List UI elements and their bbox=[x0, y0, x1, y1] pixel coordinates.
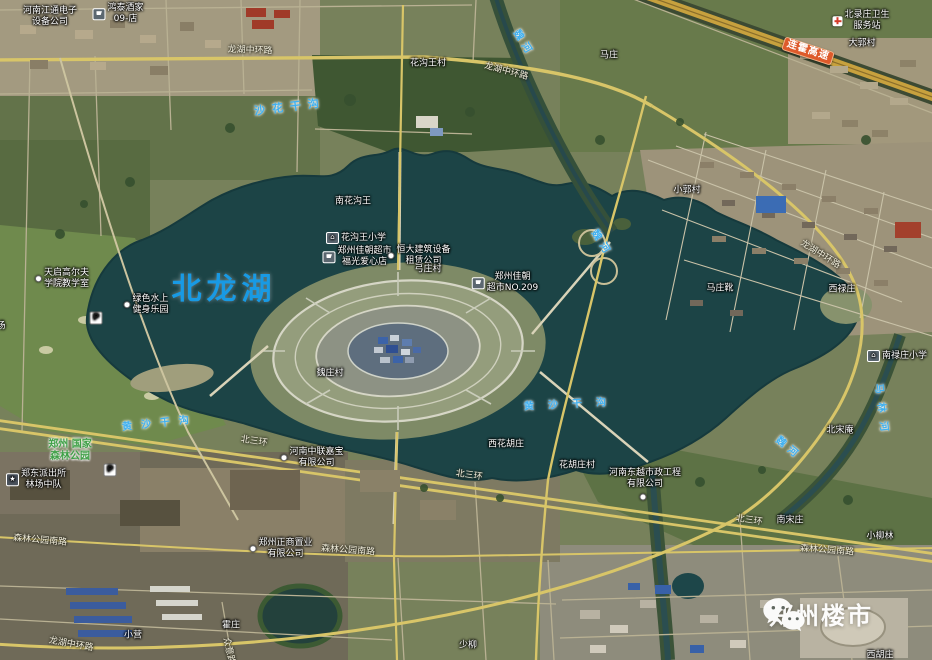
dot-icon bbox=[280, 455, 287, 462]
map-label[interactable]: 北宋庵 bbox=[826, 426, 853, 437]
poi-label[interactable]: 北录庄卫生服务站 bbox=[832, 10, 889, 32]
river-label: 魏河 bbox=[773, 435, 804, 463]
map-label[interactable]: 魏庄村 bbox=[316, 369, 343, 380]
map-label[interactable]: 花胡庄村 bbox=[559, 461, 595, 472]
parking-icon[interactable] bbox=[90, 312, 103, 325]
park-label: 郑州 国家森林公园 bbox=[48, 439, 91, 463]
dot-icon bbox=[249, 546, 256, 553]
road-label: 森林公园南路 bbox=[13, 533, 68, 548]
road-label: 龙湖中环路 bbox=[227, 45, 272, 57]
map-label[interactable]: 花沟王村 bbox=[410, 59, 446, 70]
road-label: 森林公园南路 bbox=[321, 544, 376, 559]
map-label[interactable]: 河南江通电子设备公司 bbox=[23, 6, 77, 28]
map-label[interactable]: 霍庄 bbox=[222, 621, 240, 632]
poi-label[interactable]: 郑东派出所林场中队 bbox=[6, 469, 66, 491]
poi-marker[interactable] bbox=[640, 494, 647, 501]
watermark: 郑州楼市 bbox=[762, 596, 873, 631]
dot-icon bbox=[640, 494, 647, 501]
poi-label[interactable]: 绿色水上健身乐园 bbox=[123, 294, 168, 316]
map-label[interactable]: 马庄靴 bbox=[706, 284, 733, 295]
map-label[interactable]: 南花沟王 bbox=[335, 197, 371, 208]
poi-label[interactable]: 天启高尔夫学院教学室 bbox=[35, 268, 89, 290]
poi-label[interactable]: 南禄庄小学 bbox=[867, 350, 927, 362]
dot-icon bbox=[35, 276, 42, 283]
poi-label[interactable]: 郑州佳朝超市NO.209 bbox=[472, 272, 539, 294]
map-label[interactable]: 西花胡庄 bbox=[488, 440, 524, 451]
cross-icon bbox=[832, 16, 842, 26]
river-label: 黄沙干沟 bbox=[122, 414, 199, 434]
road-label: 众意路 bbox=[220, 637, 236, 660]
parking-icon bbox=[104, 464, 117, 477]
poi-label[interactable]: 恒大建筑设备租赁公司 bbox=[387, 245, 450, 267]
map-label[interactable]: 小营 bbox=[124, 631, 142, 642]
road-label: 龙湖中环路 bbox=[483, 61, 529, 83]
expressway-badge: 连霍高速 bbox=[781, 36, 835, 65]
poi-label[interactable]: 鸿泰酒家09-店 bbox=[92, 3, 143, 25]
poi-label[interactable]: 郑州佳朝超市福光爱心店 bbox=[322, 246, 391, 268]
school-icon bbox=[867, 350, 880, 362]
map-label[interactable]: 马庄 bbox=[600, 51, 618, 62]
road-label: 北三环 bbox=[455, 469, 483, 484]
satellite-map-viewport[interactable]: 河南江通电子设备公司鸿泰酒家09-店龙湖中环路花沟王村龙湖中环路马庄魏河北录庄卫… bbox=[0, 0, 932, 660]
map-label[interactable]: 南宋庄 bbox=[776, 516, 803, 527]
dot-icon bbox=[123, 302, 130, 309]
parking-icon[interactable] bbox=[104, 464, 117, 477]
road-label: 北三环 bbox=[240, 435, 268, 450]
map-label[interactable]: 弓庄村 bbox=[414, 265, 441, 276]
parking-icon bbox=[90, 312, 103, 325]
river-label: 黄沙干沟 bbox=[524, 396, 620, 413]
map-label[interactable]: 小郭村 bbox=[673, 186, 700, 197]
labels-layer: 河南江通电子设备公司鸿泰酒家09-店龙湖中环路花沟王村龙湖中环路马庄魏河北录庄卫… bbox=[0, 0, 932, 660]
map-label[interactable]: 少柳 bbox=[459, 641, 477, 652]
star-icon bbox=[6, 474, 19, 487]
poi-label[interactable]: 花沟王小学 bbox=[326, 232, 386, 244]
cart-icon bbox=[472, 277, 485, 289]
dot-icon bbox=[387, 253, 394, 260]
map-label[interactable]: 河南东越市政工程有限公司 bbox=[609, 468, 681, 490]
cart-icon bbox=[92, 8, 105, 20]
river-label: 魏河 bbox=[510, 28, 536, 60]
map-label[interactable]: 西胡庄 bbox=[866, 651, 893, 660]
map-label[interactable]: 场 bbox=[0, 322, 6, 333]
map-label[interactable]: 大郭村 bbox=[848, 39, 875, 50]
road-label: 龙湖中环路 bbox=[798, 238, 842, 271]
lake-name-label: 北龙湖 bbox=[172, 264, 277, 308]
poi-label[interactable]: 河南中联嘉宝有限公司 bbox=[280, 447, 343, 469]
road-label: 北三环 bbox=[735, 514, 763, 529]
map-label[interactable]: 小柳林 bbox=[866, 532, 893, 543]
river-label: 魏河 bbox=[588, 228, 614, 260]
road-label: 森林公园南路 bbox=[800, 544, 855, 559]
map-label[interactable]: 西禄庄 bbox=[828, 285, 855, 296]
river-label: 沙花干沟 bbox=[253, 96, 326, 118]
river-label: 马林河 bbox=[872, 383, 891, 441]
cart-icon bbox=[322, 251, 335, 263]
road-label: 龙湖中环路 bbox=[48, 636, 94, 654]
school-icon bbox=[326, 232, 339, 244]
poi-label[interactable]: 郑州正商置业有限公司 bbox=[249, 538, 312, 560]
